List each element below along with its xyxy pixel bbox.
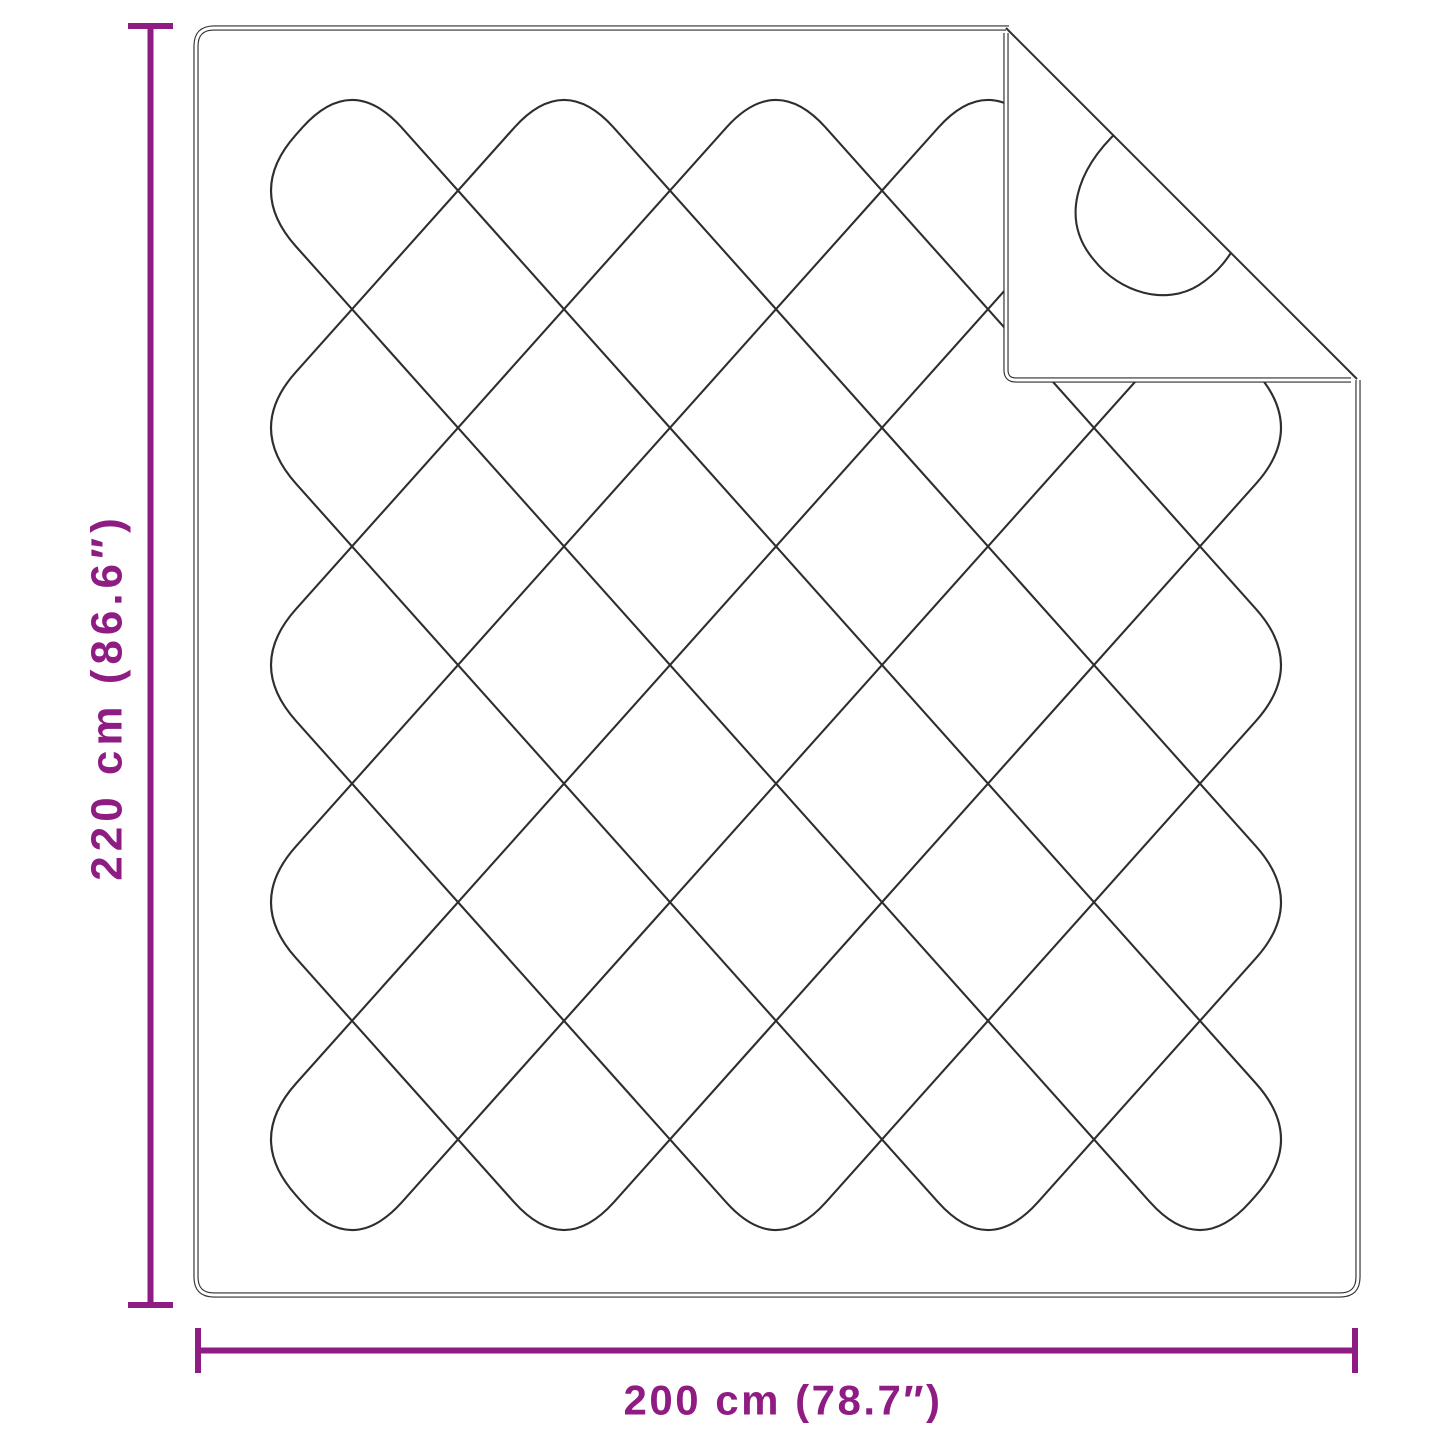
height-dimension-cap-top	[128, 23, 173, 29]
dimension-diagram: 220 cm (86.6″) 200 cm (78.7″)	[0, 0, 1445, 1445]
width-dimension-line	[198, 1348, 1355, 1354]
folded-corner	[1006, 28, 1358, 380]
width-dimension-cap-right	[1352, 1328, 1358, 1373]
width-dimension-label: 200 cm (78.7″)	[624, 1377, 943, 1424]
height-dimension-line	[148, 26, 154, 1308]
width-dimension-cap-left	[195, 1328, 201, 1373]
height-dimension-cap-bottom	[128, 1302, 173, 1308]
height-dimension-label: 220 cm (86.6″)	[83, 513, 132, 880]
diagram-canvas: 220 cm (86.6″) 200 cm (78.7″)	[0, 0, 1445, 1445]
